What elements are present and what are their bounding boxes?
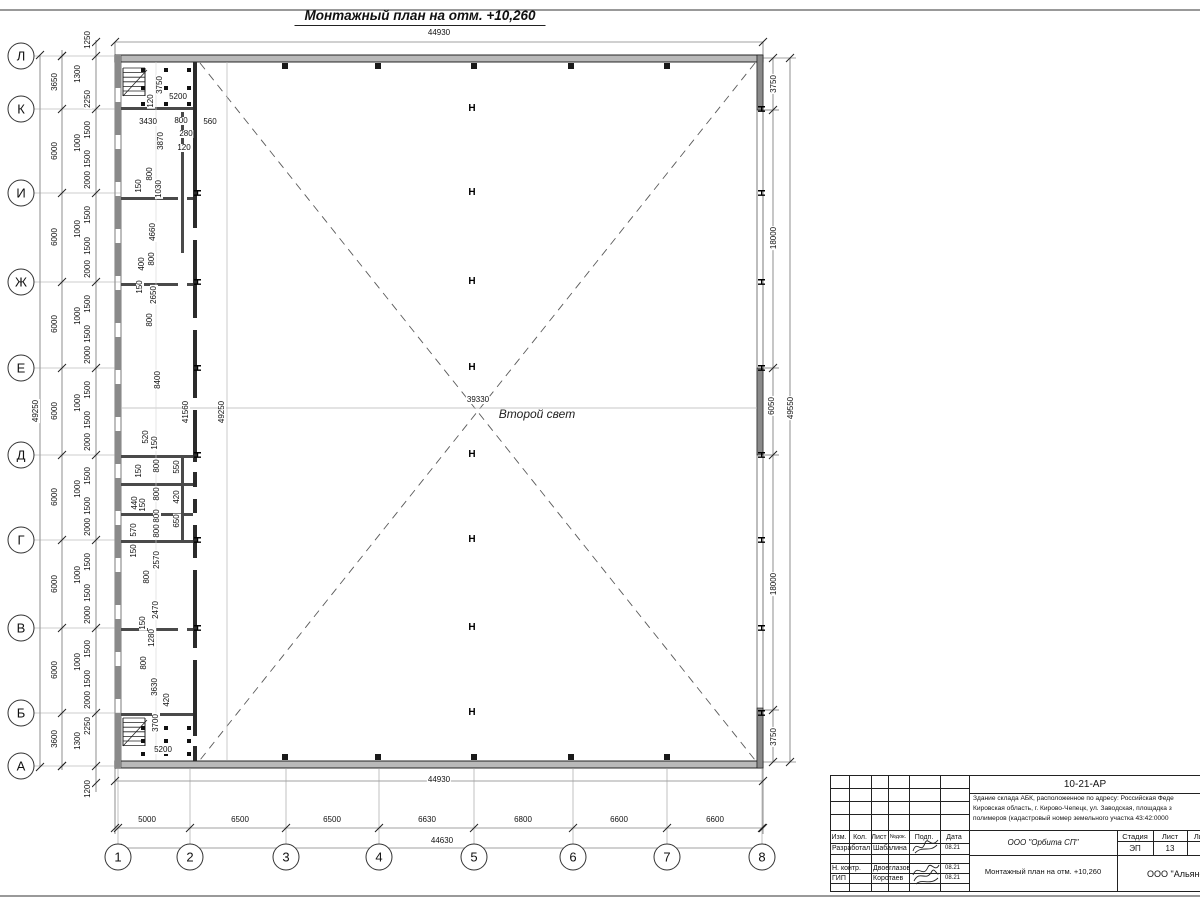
rev-header-ndok: №док. (890, 835, 906, 841)
dim-label: 800 (153, 486, 161, 501)
axis-row-К: К (8, 96, 35, 123)
dim-label: 4660 (149, 222, 157, 242)
wall-column-square (282, 63, 288, 69)
dim-label: 1500 (84, 205, 92, 225)
wall-column-square (471, 63, 477, 69)
dim-label: 1000 (74, 652, 82, 672)
dim-label: 420 (173, 489, 181, 504)
dim-label: 18000 (770, 572, 778, 596)
dim-label: 3750 (156, 75, 164, 95)
wall-column-symbol: H (755, 364, 765, 371)
wall-column-square (664, 63, 670, 69)
stage-header: Стадия (1122, 833, 1148, 841)
dim-label: 6000 (51, 487, 59, 507)
dim-label: 6600 (609, 816, 629, 824)
dim-label: 800 (143, 569, 151, 584)
axis-col-7: 7 (654, 844, 681, 871)
dim-label: 5200 (153, 746, 173, 754)
wall-column-symbol: H (755, 105, 765, 112)
stage-value: ЭП (1129, 845, 1141, 853)
dim-label: 150 (130, 543, 138, 558)
dim-label: 44630 (430, 837, 454, 845)
wall-column-square (375, 754, 381, 760)
sheet-name: Монтажный план на отм. +10,260 (985, 868, 1101, 876)
dim-label: 1500 (84, 639, 92, 659)
wall-column-symbol: H (755, 278, 765, 285)
axis-row-А: А (8, 753, 35, 780)
dim-label: 800 (146, 166, 154, 181)
dim-label: 2000 (84, 690, 92, 710)
address-line-3: полимеров (кадастровый номер земельного … (973, 816, 1169, 823)
dim-label: 1500 (84, 583, 92, 603)
dim-label: 2000 (84, 432, 92, 452)
listov-header: Листов (1194, 833, 1200, 841)
axis-row-Е: Е (8, 355, 35, 382)
dim-label: 6500 (230, 816, 250, 824)
column-symbol: H (468, 535, 475, 545)
person-name-2: Двоеглазов (873, 865, 910, 872)
dim-label: 150 (135, 178, 143, 193)
axis-row-И: И (8, 180, 35, 207)
dim-label: 3700 (152, 713, 160, 733)
column-symbol: H (468, 623, 475, 633)
dim-label: 6000 (51, 574, 59, 594)
axis-col-3: 3 (273, 844, 300, 871)
exterior-walls (115, 55, 763, 768)
wall-column-symbol: H (755, 709, 765, 716)
dim-label: 2250 (84, 716, 92, 736)
dim-label: 1000 (74, 479, 82, 499)
dim-label: 1250 (84, 30, 92, 50)
dim-label: 8400 (154, 370, 162, 390)
dim-label: 150 (139, 615, 147, 630)
dim-label: 5200 (168, 93, 188, 101)
dim-label: 6600 (705, 816, 725, 824)
dim-label: 1500 (84, 496, 92, 516)
axis-col-1: 1 (105, 844, 132, 871)
dim-label: 2650 (150, 285, 158, 305)
dim-label: 1500 (84, 236, 92, 256)
dim-label: 280 (178, 130, 193, 138)
person-role-1: Разработал (832, 845, 870, 852)
dim-label: 420 (163, 692, 171, 707)
axis-col-6: 6 (560, 844, 587, 871)
wall-column-square (282, 754, 288, 760)
wall-column-square (375, 63, 381, 69)
axis-row-Б: Б (8, 700, 35, 727)
address-line-1: Здание склада АБК, расположенное по адре… (973, 796, 1174, 803)
dim-label: 1000 (74, 219, 82, 239)
axis-row-Г: Г (8, 527, 35, 554)
wall-column-symbol: H (755, 624, 765, 631)
dim-label: 650 (173, 513, 181, 528)
dim-label: 49550 (787, 396, 795, 420)
dim-label: 6630 (417, 816, 437, 824)
dim-label: 560 (202, 118, 217, 126)
wall-column-symbol: H (191, 189, 201, 196)
axis-row-Д: Д (8, 442, 35, 469)
axis-row-Ж: Ж (8, 269, 35, 296)
dim-label: 1000 (74, 133, 82, 153)
person-role-3: ГИП (832, 875, 846, 882)
person-date-1: 08.21 (945, 845, 960, 851)
dim-label: 3750 (770, 727, 778, 747)
wall-column-symbol: H (191, 451, 201, 458)
rev-header-data: Дата (946, 834, 962, 841)
dim-label: 150 (139, 497, 147, 512)
plan-title: Монтажный план на отм. +10,260 (295, 8, 546, 26)
dim-label: 1030 (155, 179, 163, 199)
wall-column-symbol: H (191, 624, 201, 631)
dim-label: 800 (153, 523, 161, 538)
dim-label: 1500 (84, 120, 92, 140)
wall-column-symbol: H (755, 189, 765, 196)
hall-label: Второй свет (499, 407, 575, 421)
dim-label: 1300 (74, 731, 82, 751)
dim-label: 800 (173, 117, 188, 125)
dashed-diagonals (200, 63, 755, 760)
dim-label: 1000 (74, 393, 82, 413)
dim-label: 44930 (427, 29, 451, 37)
wall-column-square (568, 63, 574, 69)
dim-label: 49250 (32, 399, 40, 423)
person-date-3: 08.21 (945, 875, 960, 881)
wall-column-symbol: H (191, 536, 201, 543)
dim-label: 18000 (770, 226, 778, 250)
wall-column-square (664, 754, 670, 760)
column-symbol: H (468, 277, 475, 287)
dim-label: 6000 (51, 401, 59, 421)
rev-header-kol: Кол. (853, 834, 867, 841)
dim-label: 6000 (51, 314, 59, 334)
drawing-sheet: { "sheet": { "title": "Монтажный план на… (0, 0, 1200, 900)
dim-label: 3430 (138, 118, 158, 126)
wall-column-square (568, 754, 574, 760)
dim-label: 520 (142, 429, 150, 444)
wall-column-symbol: H (755, 451, 765, 458)
list-header: Лист (1162, 833, 1178, 841)
dim-label: 3870 (157, 131, 165, 151)
dim-label: 6000 (51, 227, 59, 247)
dim-label: 6050 (768, 396, 776, 416)
org2-name: ООО "Альянс (1147, 870, 1200, 879)
dim-label: 1500 (84, 669, 92, 689)
wall-column-symbol: H (191, 364, 201, 371)
dim-label: 3600 (51, 729, 59, 749)
axis-row-В: В (8, 615, 35, 642)
dim-label: 550 (173, 459, 181, 474)
dim-label: 1500 (84, 410, 92, 430)
dim-label: 2000 (84, 345, 92, 365)
dim-label: 2000 (84, 517, 92, 537)
person-date-2: 08.21 (945, 865, 960, 871)
person-name-1: Шабалина (873, 845, 907, 852)
dim-label: 49250 (218, 400, 226, 424)
dim-label: 150 (136, 279, 144, 294)
dim-label: 120 (176, 144, 191, 152)
title-block: 10-21-АР Здание склада АБК, расположенно… (830, 775, 1200, 892)
axis-col-8: 8 (749, 844, 776, 871)
dim-label: 1000 (74, 306, 82, 326)
dim-label: 2470 (152, 600, 160, 620)
dim-label: 3650 (51, 72, 59, 92)
dim-label: 1500 (84, 324, 92, 344)
dim-label: 800 (140, 655, 148, 670)
dim-label: 1280 (148, 628, 156, 648)
dim-label: 1500 (84, 466, 92, 486)
dim-label: 6800 (513, 816, 533, 824)
column-symbol: H (468, 708, 475, 718)
dim-label: 1500 (84, 380, 92, 400)
list-value: 13 (1166, 845, 1175, 853)
wall-column-symbol: H (191, 278, 201, 285)
column-symbol: H (468, 363, 475, 373)
person-name-3: Коротаев (873, 875, 903, 882)
dim-label: 2000 (84, 170, 92, 190)
dim-label: 150 (135, 463, 143, 478)
dim-label: 2000 (84, 605, 92, 625)
rev-header-izm: Изм. (832, 834, 847, 841)
dim-label: 6500 (322, 816, 342, 824)
dim-label: 800 (148, 251, 156, 266)
axis-col-4: 4 (366, 844, 393, 871)
rev-header-list: Лист (871, 834, 886, 841)
wall-column-square (471, 754, 477, 760)
dim-label: 1500 (84, 149, 92, 169)
dim-label: 44930 (427, 776, 451, 784)
dim-label: 5000 (137, 816, 157, 824)
axis-col-5: 5 (461, 844, 488, 871)
dim-label: 150 (151, 435, 159, 450)
dim-label: 1500 (84, 294, 92, 314)
dim-label: 6000 (51, 141, 59, 161)
axis-col-2: 2 (177, 844, 204, 871)
dim-label: 1000 (74, 565, 82, 585)
org-name: ООО "Орбита СП" (1007, 839, 1078, 847)
dim-label: 2250 (84, 89, 92, 109)
address-line-2: Кировская область, г. Кирово-Чепецк, ул.… (973, 806, 1172, 813)
dim-label: 1300 (74, 64, 82, 84)
axis-row-Л: Л (8, 43, 35, 70)
dim-label: 800 (146, 312, 154, 327)
dim-label: 6000 (51, 660, 59, 680)
doc-number: 10-21-АР (1064, 780, 1106, 790)
dim-label: 800 (153, 508, 161, 523)
dim-label: 3630 (151, 677, 159, 697)
dim-label: 39330 (466, 396, 490, 404)
signature-scribbles (911, 837, 941, 889)
dim-label: 2000 (84, 259, 92, 279)
dim-label: 1500 (84, 552, 92, 572)
dim-label: 400 (138, 256, 146, 271)
wall-column-symbol: H (755, 536, 765, 543)
dim-label: 2570 (153, 550, 161, 570)
dim-label: 41560 (182, 400, 190, 424)
person-role-2: Н. контр. (832, 865, 861, 872)
dim-label: 800 (153, 458, 161, 473)
dim-label: 1200 (84, 779, 92, 799)
column-symbol: H (468, 104, 475, 114)
dim-label: 570 (130, 522, 138, 537)
column-symbol: H (468, 450, 475, 460)
dim-label: 120 (147, 93, 155, 108)
dim-label: 3750 (770, 74, 778, 94)
column-symbol: H (468, 188, 475, 198)
